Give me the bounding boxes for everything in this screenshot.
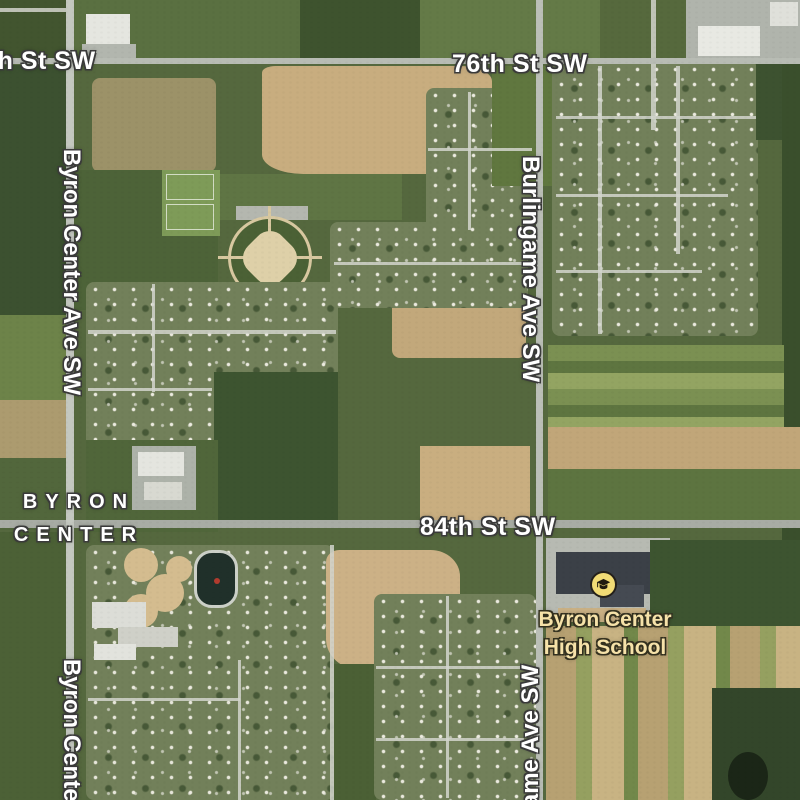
farm-strips [548, 345, 784, 427]
residential-street [0, 8, 66, 12]
town-label-line1: BYRON [4, 486, 154, 519]
residential-street [88, 698, 240, 701]
residential-street [88, 330, 336, 334]
residential-street [446, 596, 449, 798]
poi-label-line2: High School [525, 634, 685, 662]
field-patch [548, 469, 800, 523]
residential-street [651, 0, 656, 130]
residential-street [428, 148, 532, 151]
residential-street [556, 194, 728, 197]
farm-field [548, 427, 800, 469]
soccer-pitch [166, 174, 214, 200]
stadium-midfield-logo [214, 578, 220, 584]
building [770, 2, 798, 26]
street-label-76th-west: 76th St SW [0, 47, 96, 76]
school-icon[interactable] [590, 571, 617, 598]
residential-street [238, 660, 241, 800]
town-label-line2: CENTER [4, 519, 154, 552]
forest-patch [214, 372, 338, 524]
baseball-diamond [166, 556, 192, 582]
town-label-byron-center: BYRON CENTER [4, 486, 154, 552]
forest-patch [600, 0, 690, 58]
residential-street [376, 738, 524, 741]
soccer-fields [162, 170, 220, 236]
building [698, 26, 760, 56]
road-76th-st [0, 58, 800, 64]
residential-street [468, 92, 471, 230]
building [92, 602, 146, 628]
residential-street [330, 545, 334, 800]
residential-street [152, 284, 155, 392]
residential-area [374, 594, 536, 800]
field-patch [334, 664, 376, 800]
street-label-76th: 76th St SW [452, 50, 588, 79]
poi-label-byron-center-high-school[interactable]: Byron Center High School [525, 606, 685, 662]
residential-area [330, 222, 528, 308]
poi-label-line1: Byron Center [525, 606, 685, 634]
residential-street [88, 388, 212, 391]
satellite-map[interactable]: 76th St SW 76th St SW 84th St SW Byron C… [0, 0, 800, 800]
soccer-pitch [166, 204, 214, 230]
residential-street [556, 116, 756, 119]
residential-street [598, 66, 602, 334]
pond [728, 752, 768, 800]
stadium-track [194, 550, 238, 608]
street-label-84th: 84th St SW [420, 513, 556, 542]
farm-field [0, 400, 66, 458]
graduation-cap-glyph [595, 576, 612, 593]
residential-street [376, 666, 534, 669]
forest-patch [300, 0, 420, 58]
building [94, 644, 136, 660]
plowed-field [92, 78, 216, 172]
residential-street [334, 262, 526, 265]
building [86, 14, 130, 46]
building [138, 452, 184, 476]
residential-street [676, 66, 680, 254]
residential-street [556, 270, 702, 273]
